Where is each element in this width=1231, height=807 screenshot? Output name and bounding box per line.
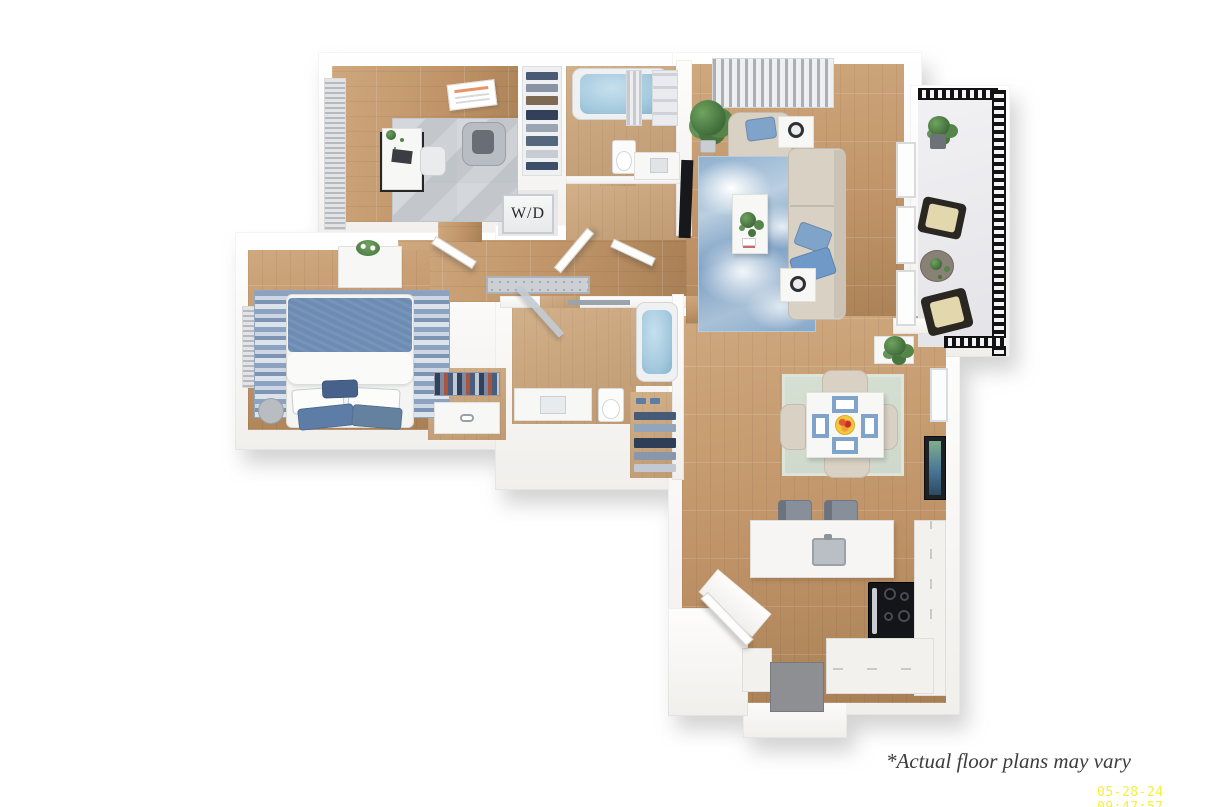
floor-plan: W/D xyxy=(0,0,1231,807)
balcony-table-plant xyxy=(930,258,942,270)
office-armchair-seat xyxy=(472,130,494,154)
bed-pillow-blue-2 xyxy=(351,404,403,430)
bathroom1-toilet xyxy=(612,140,636,174)
office-desk-chair xyxy=(420,146,446,176)
living-corner-plant xyxy=(690,100,726,136)
bathroom1-shower-curtain xyxy=(626,70,642,126)
balcony-railing-south xyxy=(944,336,1006,348)
floor-plan-screenshot: W/D xyxy=(0,0,1231,807)
bedroom-stool xyxy=(258,398,284,424)
closet-shelf-item xyxy=(526,124,558,132)
stove-burner-3 xyxy=(884,612,893,621)
placemat-north xyxy=(832,396,858,413)
living-lamp-north xyxy=(788,122,804,138)
living-plant-pot xyxy=(700,140,716,153)
hallway-rug xyxy=(486,276,590,294)
sofa-backrest xyxy=(834,150,846,318)
closet-shelf-item xyxy=(526,72,558,80)
living-ceiling-vent xyxy=(712,58,834,108)
balcony-plant xyxy=(928,116,950,136)
coffee-table-books xyxy=(742,238,756,246)
bed-pillow-accent xyxy=(322,379,359,398)
placemat-west xyxy=(812,414,829,438)
closet-shelf-item xyxy=(526,162,558,170)
fruit-bowl xyxy=(835,415,855,435)
entry-door-mat xyxy=(770,662,824,712)
timestamp-watermark: 05-28-24 09:47:57 xyxy=(1097,785,1231,807)
dining-wall-art xyxy=(924,436,946,500)
office-monitor xyxy=(391,149,412,164)
linen-stack xyxy=(634,424,676,432)
kitchen-cabinets-south xyxy=(826,638,934,694)
dining-window xyxy=(930,368,948,422)
bedroom-dresser-flowers xyxy=(356,240,380,256)
placemat-east xyxy=(861,414,878,438)
stove-burner-4 xyxy=(898,610,910,622)
linen-shoes xyxy=(636,398,646,404)
office-doorway xyxy=(438,222,482,242)
closet-shelf-item xyxy=(526,136,558,146)
living-window-3 xyxy=(896,270,916,326)
dining-niche-plant xyxy=(884,336,906,356)
walkin-hanging-clothes xyxy=(434,372,500,396)
office-desk-plant xyxy=(386,130,396,140)
dining-wall-art-canvas xyxy=(929,441,941,495)
sofa-cushion-seam-1 xyxy=(790,205,834,207)
stove-burner-1 xyxy=(884,588,896,600)
office-window-blinds xyxy=(324,78,346,230)
washer-dryer-label: W/D xyxy=(511,205,545,223)
kitchen-sink xyxy=(812,538,846,566)
living-armchair-pillow xyxy=(745,116,778,142)
balcony-plant-pot xyxy=(930,134,946,149)
linen-stack xyxy=(634,438,676,448)
kitchen-counter-west xyxy=(742,648,772,692)
balcony-railing-east xyxy=(992,90,1006,356)
oven-door-handle xyxy=(872,588,877,634)
closet-shelf-item xyxy=(526,110,558,120)
balcony-railing-north xyxy=(918,88,998,100)
living-window-1 xyxy=(896,142,916,198)
stove-burner-2 xyxy=(900,592,909,601)
bathroom2-tub-water xyxy=(642,310,672,374)
bathroom1-sink xyxy=(650,158,668,173)
walkin-dresser-handle xyxy=(460,414,474,422)
bathroom2-light-bar xyxy=(568,300,630,305)
living-window-2 xyxy=(896,206,916,264)
bathroom1-shelf xyxy=(652,70,678,126)
closet-shelf-item xyxy=(526,96,558,105)
bathroom2-sink xyxy=(540,396,566,414)
closet-shelf-item xyxy=(526,84,558,92)
dining-chair-west xyxy=(780,404,806,450)
placemat-south xyxy=(832,437,858,454)
bathroom1-tub-water xyxy=(580,74,660,114)
linen-stack xyxy=(634,452,676,460)
living-lamp-south xyxy=(790,276,806,292)
coffee-table-plant xyxy=(740,212,756,228)
linen-stack xyxy=(634,464,676,472)
closet-shelf-item xyxy=(526,150,558,158)
hall-closet-interior xyxy=(522,66,562,176)
washer-dryer-unit: W/D xyxy=(502,194,554,234)
bathroom2-toilet xyxy=(598,388,624,422)
linen-stack xyxy=(634,412,676,420)
bed-blanket xyxy=(288,298,412,352)
disclaimer-text: *Actual floor plans may vary xyxy=(886,749,1131,774)
kitchen-faucet xyxy=(824,534,832,540)
